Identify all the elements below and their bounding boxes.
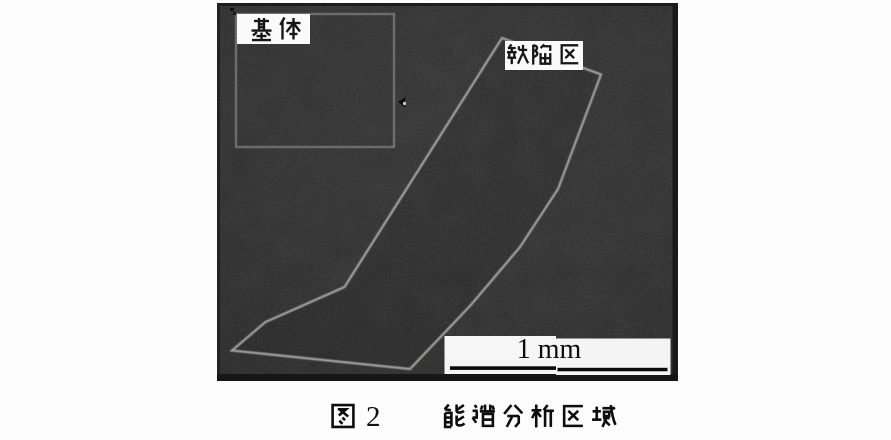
svg-text:1 mm: 1 mm [517,334,582,365]
svg-text:2: 2 [366,401,381,433]
